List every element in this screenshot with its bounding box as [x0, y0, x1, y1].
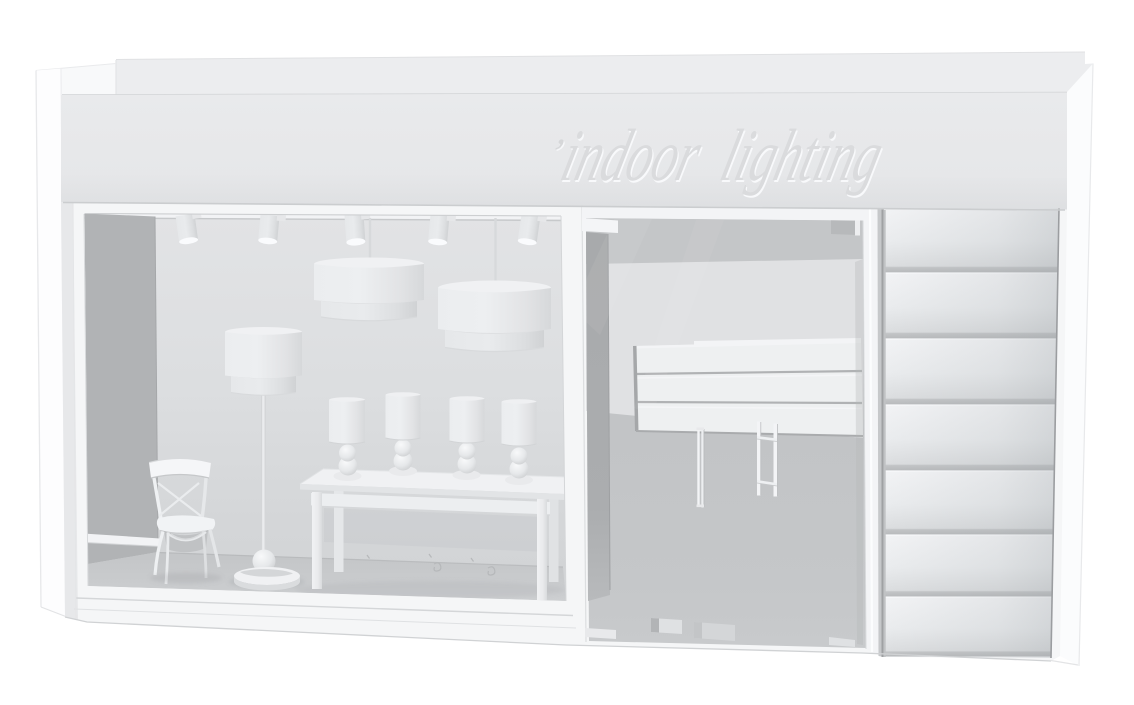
svg-text:indoor: indoor	[553, 115, 710, 197]
svg-text:lighting: lighting	[713, 115, 892, 197]
